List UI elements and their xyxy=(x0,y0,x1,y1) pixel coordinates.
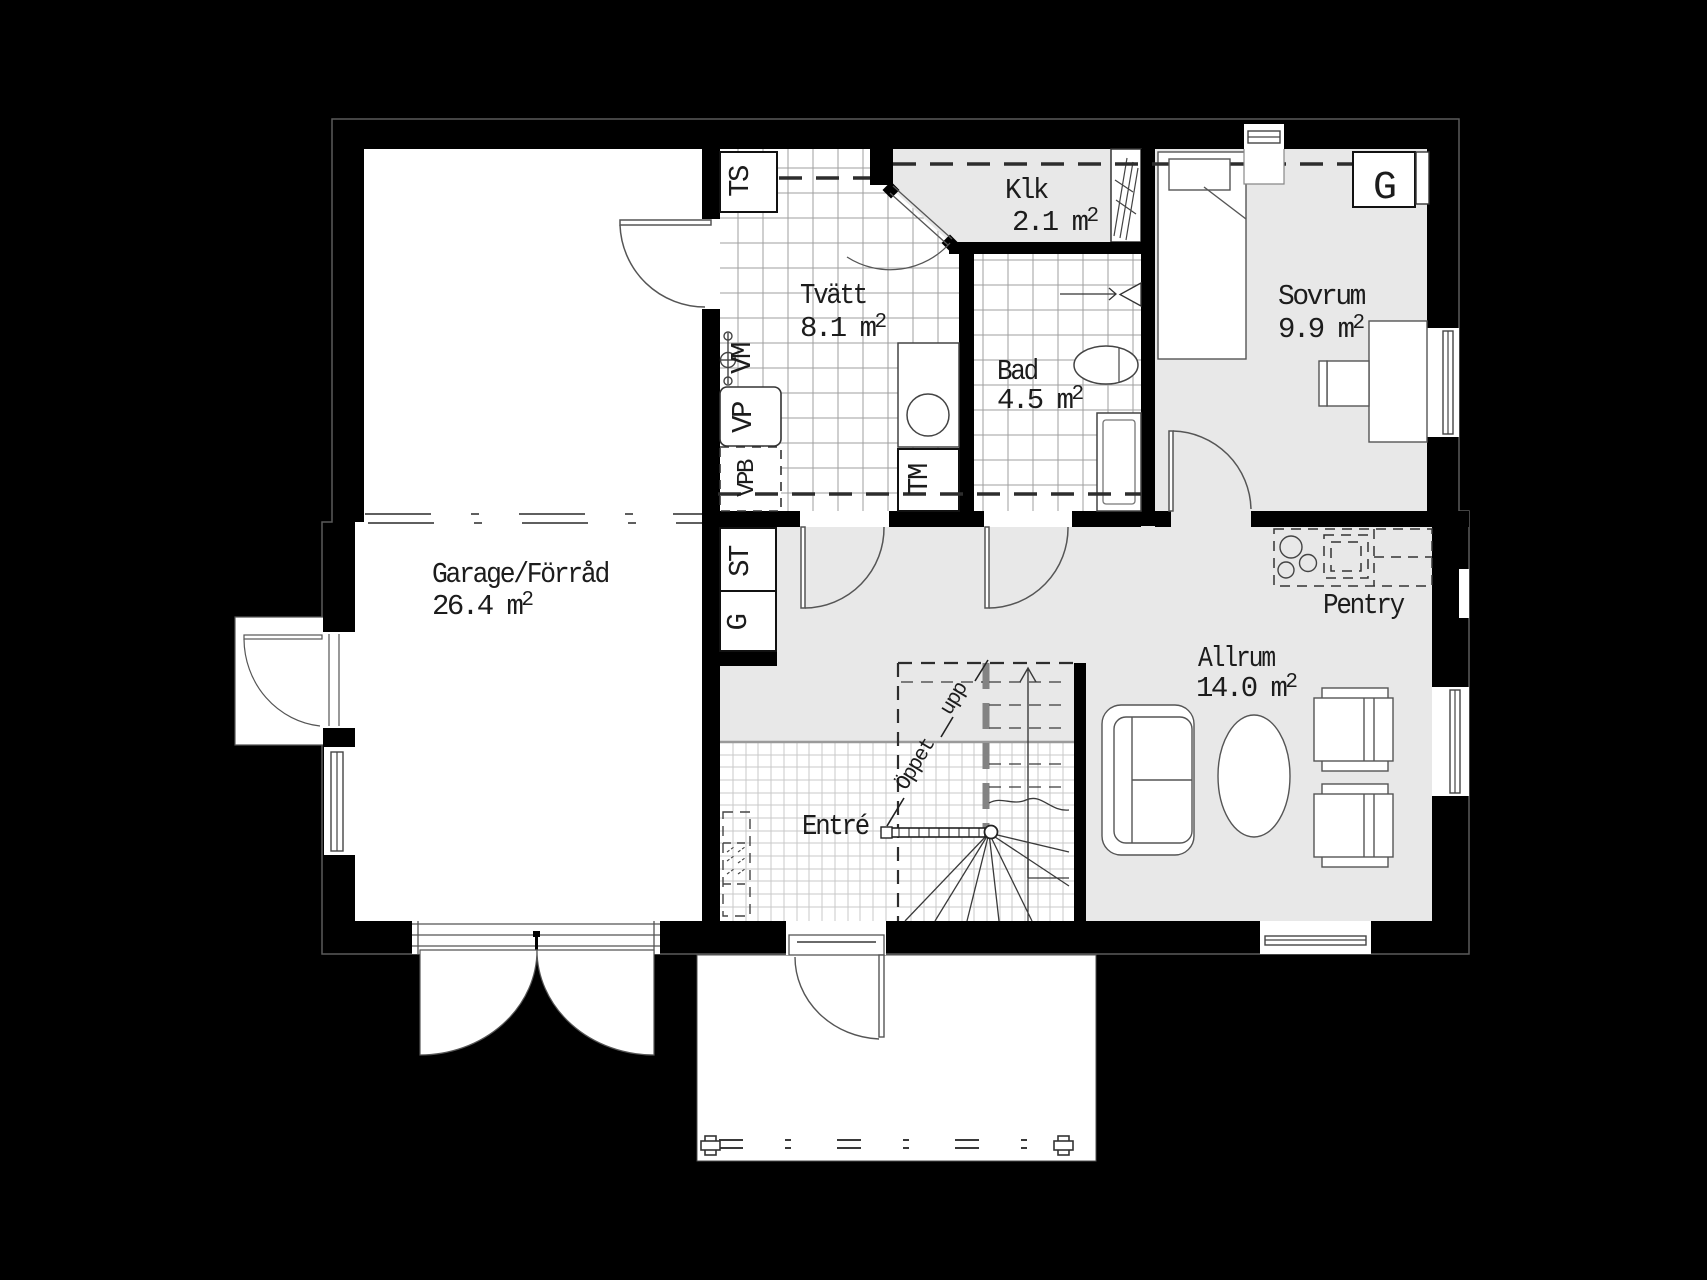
svg-text:Klk: Klk xyxy=(1005,174,1048,207)
svg-text:Sovrum: Sovrum xyxy=(1278,280,1365,313)
svg-text:VPB: VPB xyxy=(734,459,761,497)
svg-text:4.5 m2: 4.5 m2 xyxy=(997,383,1084,417)
svg-text:8.1 m2: 8.1 m2 xyxy=(800,311,887,345)
svg-text:G: G xyxy=(1373,166,1397,211)
svg-text:Pentry: Pentry xyxy=(1323,589,1405,622)
svg-text:Entré: Entré xyxy=(802,810,869,843)
svg-text:14.0 m2: 14.0 m2 xyxy=(1196,671,1297,705)
svg-text:VP: VP xyxy=(727,402,760,433)
svg-text:TM: TM xyxy=(903,464,936,495)
svg-text:TS: TS xyxy=(724,166,757,197)
svg-text:Allrum: Allrum xyxy=(1198,642,1275,675)
svg-text:G: G xyxy=(722,614,755,630)
svg-text:9.9 m2: 9.9 m2 xyxy=(1278,312,1365,346)
svg-text:Garage/Förråd: Garage/Förråd xyxy=(432,558,608,591)
svg-text:2.1 m2: 2.1 m2 xyxy=(1012,205,1099,239)
svg-text:ST: ST xyxy=(724,545,757,577)
svg-text:Tvätt: Tvätt xyxy=(800,279,866,312)
svg-text:VM: VM xyxy=(726,343,759,374)
svg-text:26.4 m2: 26.4 m2 xyxy=(432,589,533,623)
